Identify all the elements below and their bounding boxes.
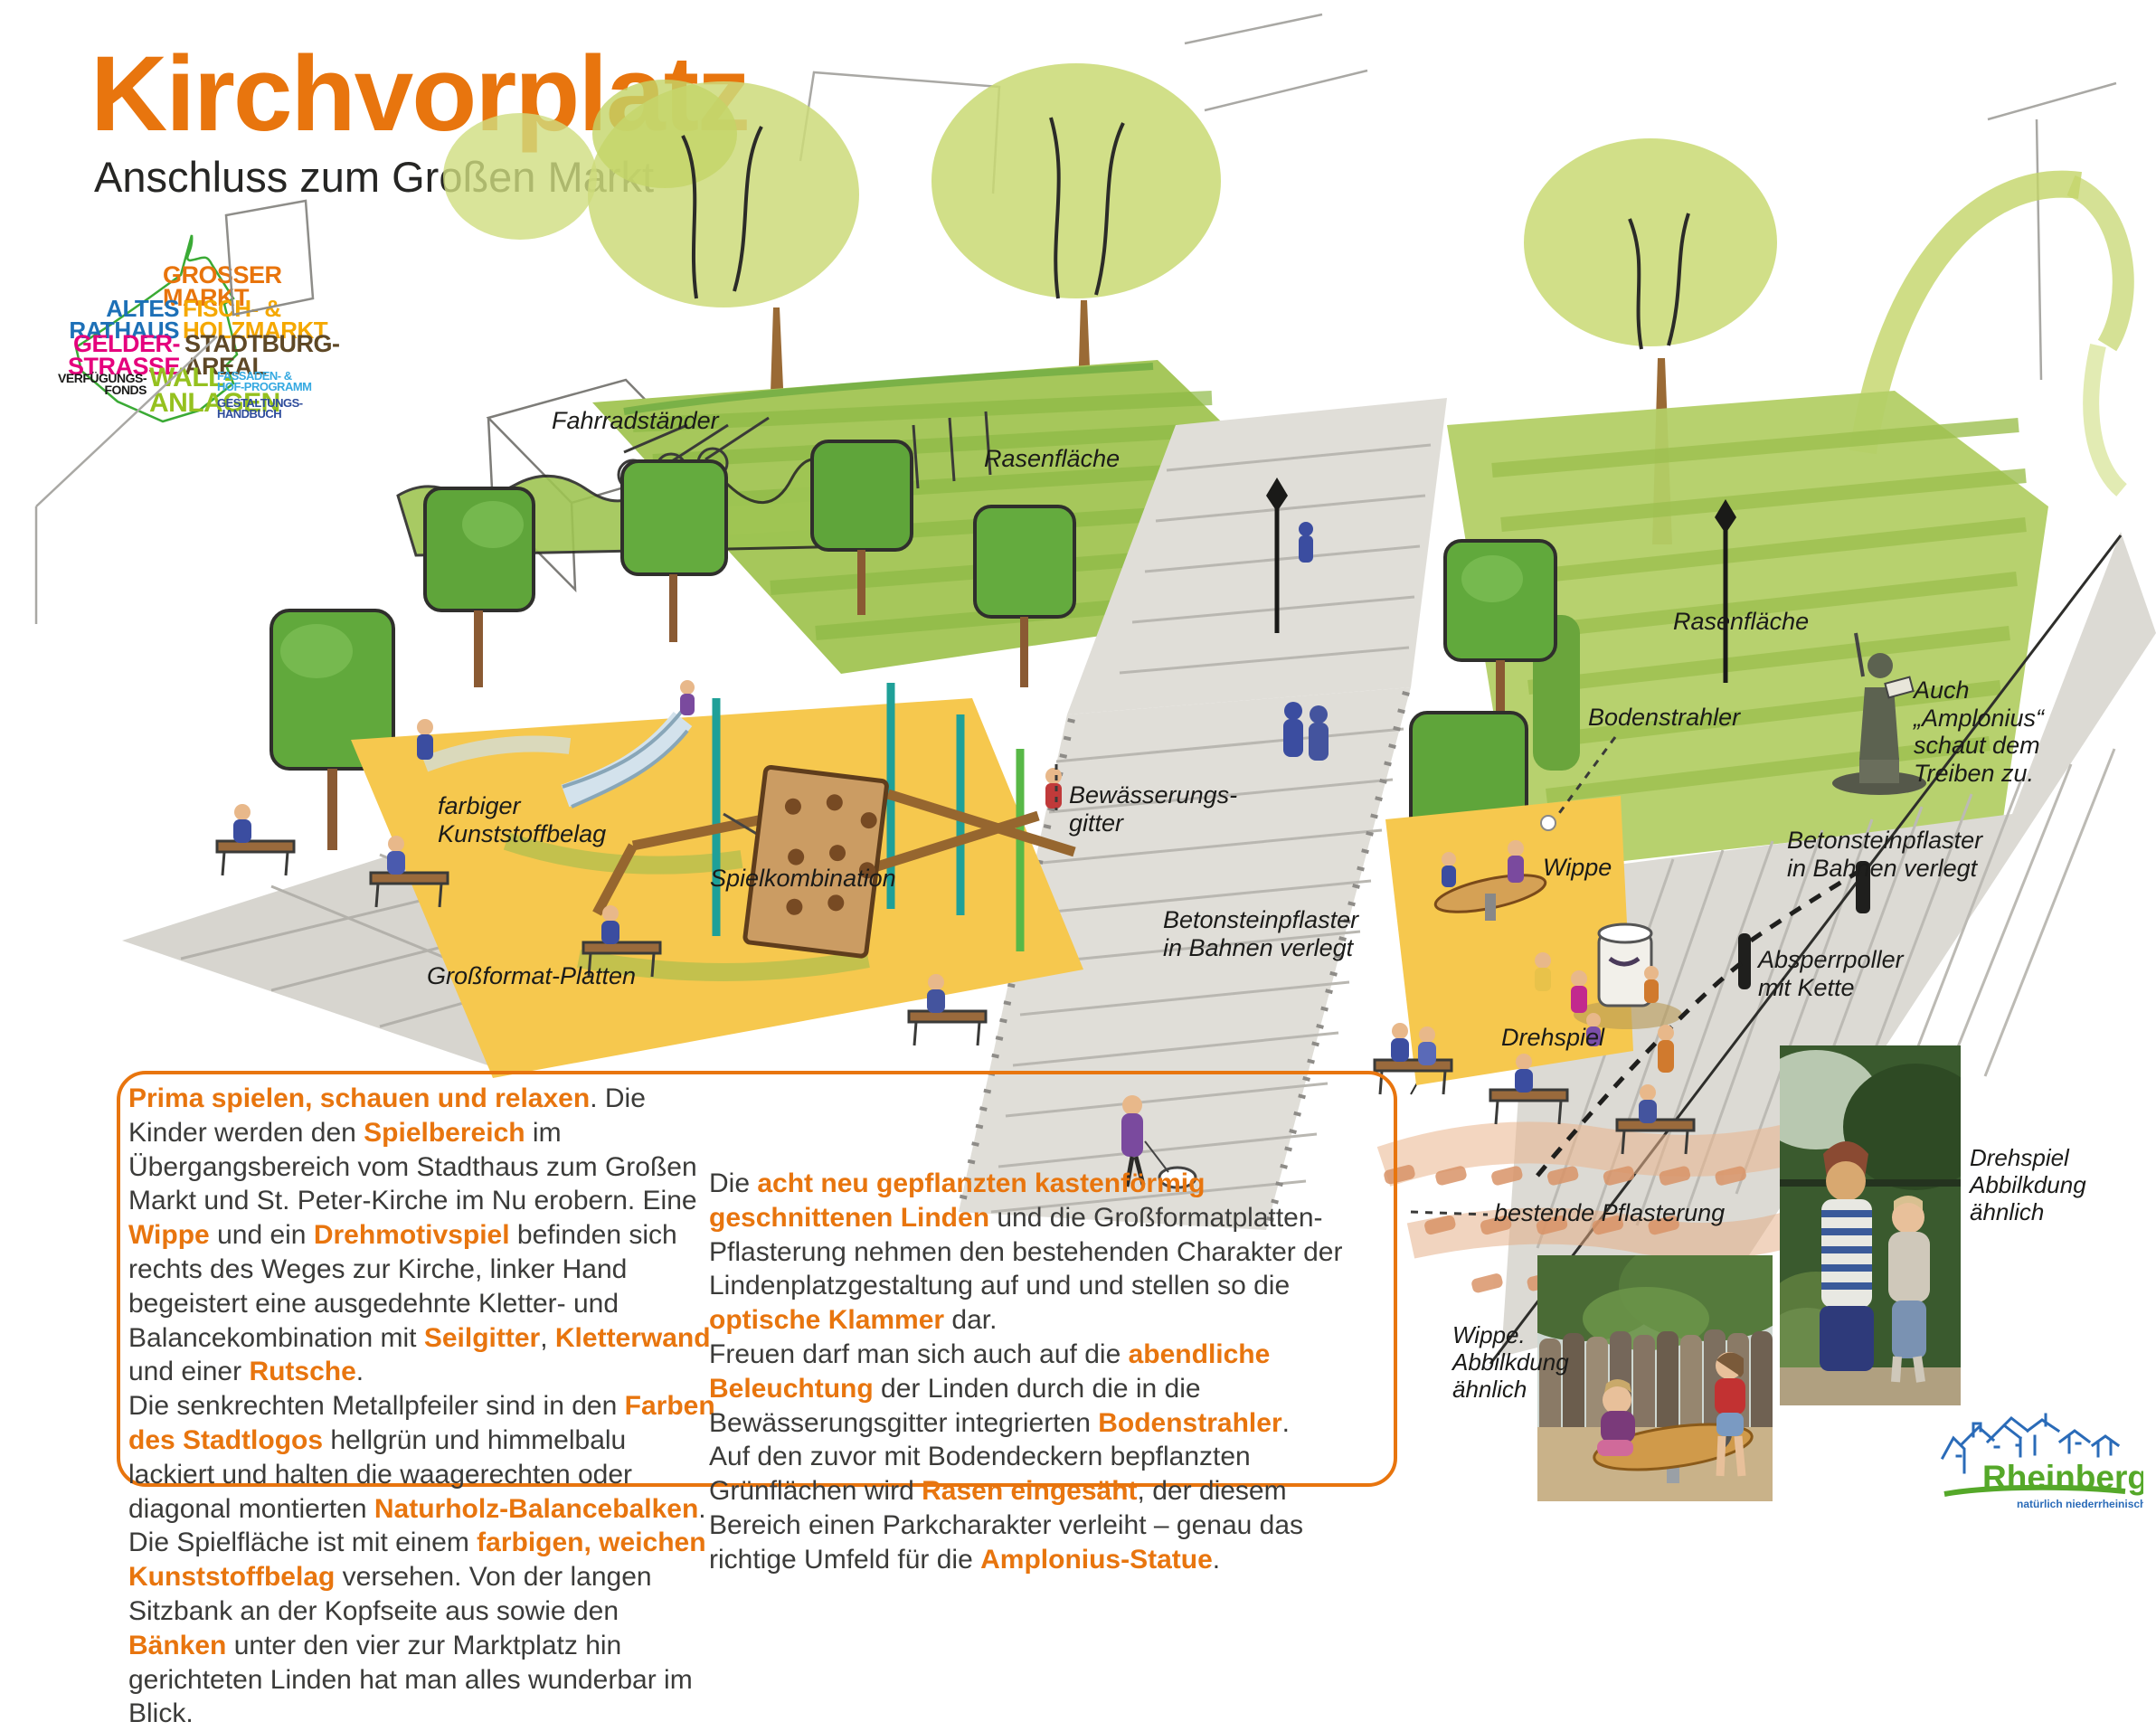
- plain-text: .: [1213, 1545, 1220, 1575]
- highlighted-text: Rasen eingesäht: [922, 1476, 1137, 1506]
- plan-label-bewaesserungsgitter: Bewässerungs- gitter: [1069, 781, 1237, 837]
- plan-label-betonsteinpflaster-mitte: Betonsteinpflaster in Bahnen verlegt: [1163, 906, 1358, 961]
- highlighted-text: Rutsche: [249, 1357, 355, 1386]
- plan-label-kunststoffbelag: farbiger Kunststoffbelag: [438, 792, 606, 847]
- left-paragraph: Prima spielen, schauen und relaxen. Die …: [128, 1082, 718, 1731]
- highlighted-text: Prima spielen, schauen und relaxen: [128, 1083, 590, 1113]
- plan-label-betonsteinpflaster-rechts: Betonsteinpflaster in Bahnen verlegt: [1787, 827, 1982, 882]
- highlighted-text: optische Klammer: [709, 1305, 944, 1335]
- plain-text: und ein: [210, 1220, 314, 1250]
- highlighted-text: Amplonius-Statue: [980, 1545, 1213, 1575]
- highlighted-text: Kletterwand: [555, 1323, 711, 1353]
- plain-text: dar.: [944, 1305, 997, 1335]
- highlighted-text: Bänken: [128, 1631, 226, 1660]
- plain-text: .: [356, 1357, 364, 1386]
- highlighted-text: Drehmotivspiel: [314, 1220, 510, 1250]
- rheinberg-logo: Rheinberg natürlich niederrheinisch: [1935, 1400, 2143, 1513]
- highlighted-text: Seilgitter: [424, 1323, 540, 1353]
- plan-label-amplonius: Auch „Amplonius“ schaut dem Treiben zu.: [1914, 676, 2044, 787]
- highlighted-text: Wippe: [128, 1220, 210, 1250]
- plan-label-fahrradstaender: Fahrradständer: [552, 407, 719, 435]
- middle-paragraph: Die acht neu gepflanzten kastenförmig ge…: [709, 1167, 1364, 1577]
- plain-text: Die senkrechten Metallpfeiler sind in de…: [128, 1391, 625, 1421]
- poster-page: Kirchvorplatz Anschluss zum Großen Markt…: [0, 0, 2156, 1523]
- plan-label-bestende-pflasterung: bestende Pflasterung: [1494, 1199, 1725, 1227]
- plan-label-spielkombination: Spielkombination: [710, 865, 896, 893]
- plan-label-drehspiel: Drehspiel: [1501, 1024, 1604, 1052]
- plain-text: .: [1282, 1408, 1290, 1438]
- plain-text: Freuen darf man sich auch auf die: [709, 1339, 1129, 1369]
- highlighted-text: Bodenstrahler: [1098, 1408, 1281, 1438]
- plain-text: Die: [709, 1168, 757, 1198]
- plain-text: und einer: [128, 1357, 249, 1386]
- highlighted-text: Naturholz-Balancebalken: [374, 1494, 698, 1524]
- plan-label-grossformat-platten: Großformat-Platten: [427, 962, 636, 990]
- wippe-photo-caption: Wippe. Abbilkdung ähnlich: [1452, 1322, 1569, 1404]
- rheinberg-tagline: natürlich niederrheinisch: [2017, 1498, 2143, 1510]
- drehspiel-photo: [1780, 1045, 1961, 1405]
- plan-label-absperrpoller: Absperrpoller mit Kette: [1758, 946, 1904, 1001]
- plain-text: ,: [540, 1323, 555, 1353]
- plan-label-rasenflaeche-links: Rasenfläche: [984, 445, 1120, 473]
- plan-label-bodenstrahler: Bodenstrahler: [1588, 704, 1740, 732]
- plan-label-wippe: Wippe: [1543, 854, 1612, 882]
- plan-label-rasenflaeche-rechts: Rasenfläche: [1673, 608, 1809, 636]
- drehspiel-photo-caption: Drehspiel Abbilkdung ähnlich: [1970, 1145, 2086, 1226]
- highlighted-text: Spielbereich: [364, 1118, 525, 1148]
- wippe-photo: [1537, 1255, 1773, 1501]
